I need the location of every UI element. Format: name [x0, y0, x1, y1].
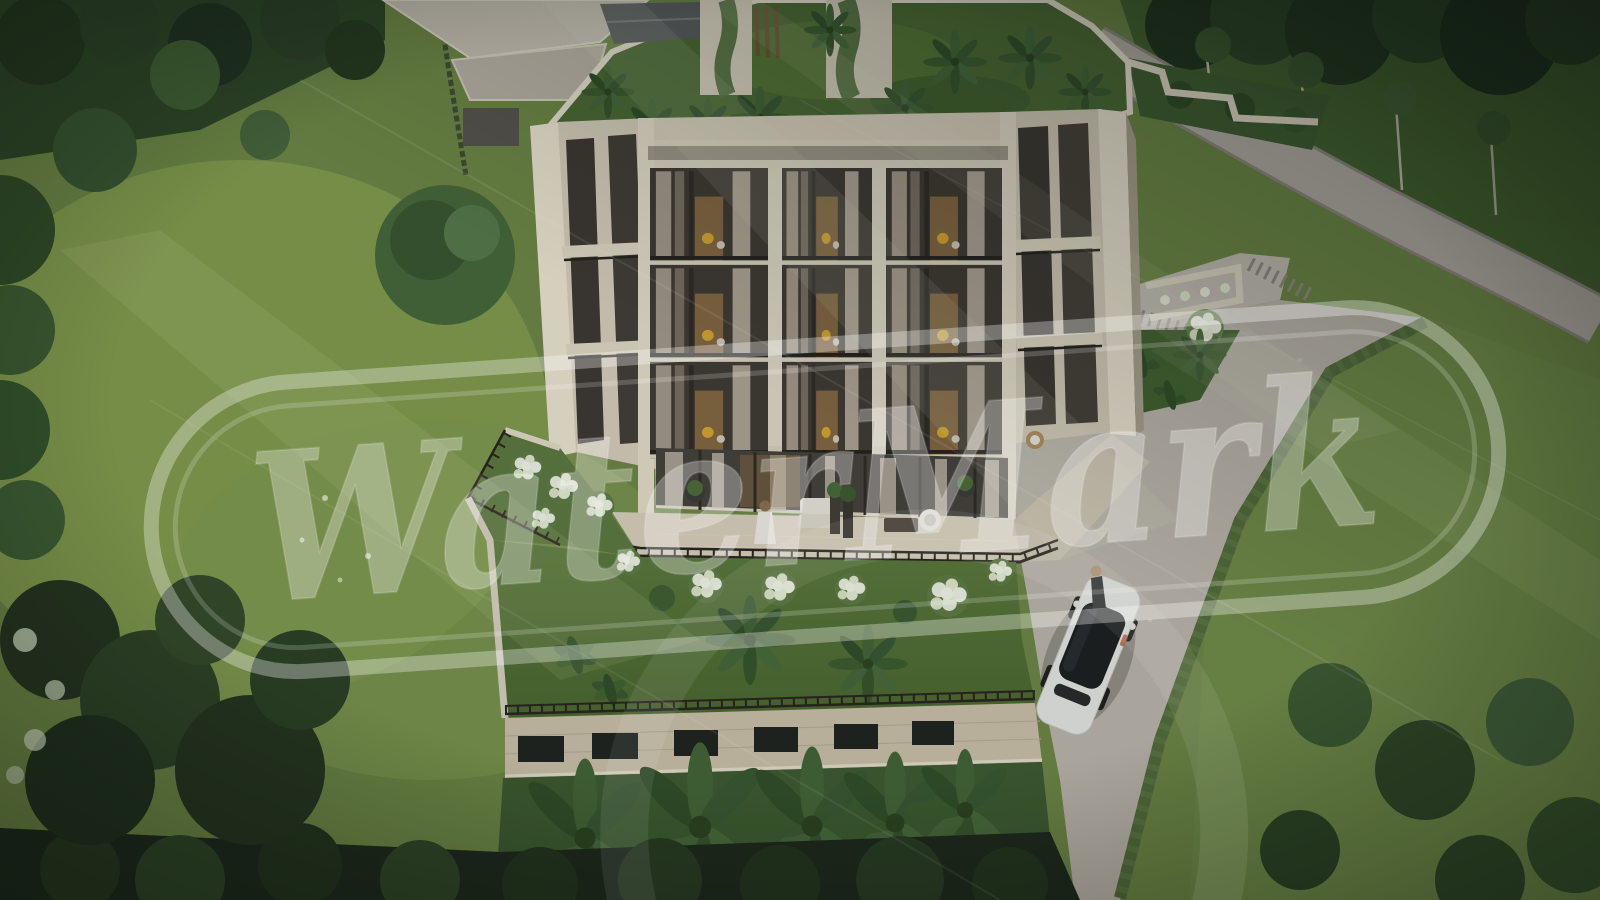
scene: WaterMark [0, 0, 1600, 900]
architectural-render: WaterMark [0, 0, 1600, 900]
